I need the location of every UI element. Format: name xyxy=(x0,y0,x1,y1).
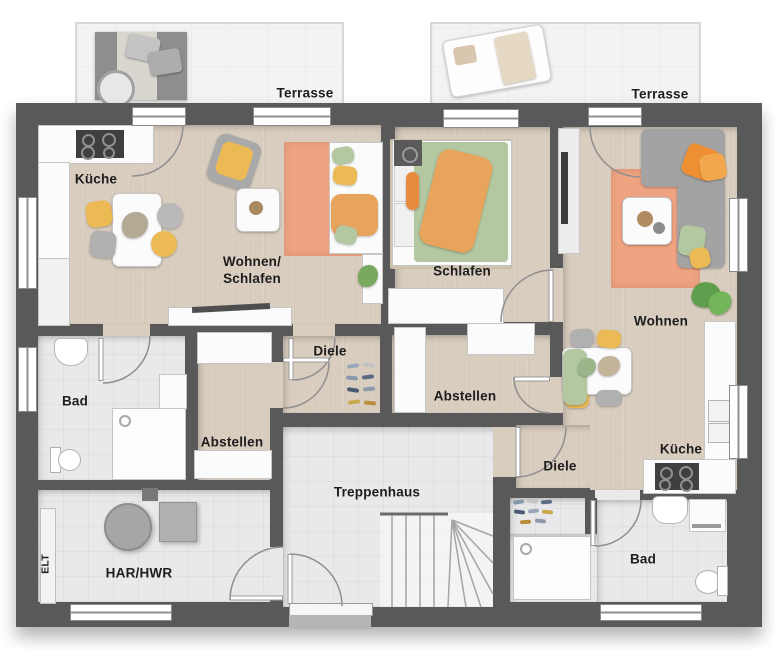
kitchen-sink xyxy=(708,400,731,422)
room-label-schlafen: Schlafen xyxy=(433,264,491,281)
room-label-abstellen-right: Abstellen xyxy=(434,389,497,406)
room-label-kueche-right: Küche xyxy=(660,442,702,459)
door-opening xyxy=(293,324,335,336)
shoe-rack xyxy=(344,360,380,414)
room-label-kueche-left: Küche xyxy=(75,172,117,189)
room-label-line2: Schlafen xyxy=(223,271,281,288)
terrace-door-left xyxy=(132,107,186,126)
room-label-abstellen-left: Abstellen xyxy=(201,435,264,452)
terrace-left: Terrasse xyxy=(75,22,344,107)
entrance-porch xyxy=(289,615,371,629)
room-label-terrasse-left: Terrasse xyxy=(277,86,334,103)
kitchen-sink xyxy=(708,423,731,443)
dining-chair xyxy=(157,203,183,229)
dining-chair xyxy=(596,390,622,406)
window xyxy=(18,197,37,289)
storage-shelf xyxy=(467,323,535,355)
door-opening xyxy=(493,427,516,477)
coffee-table xyxy=(622,197,672,245)
wall-segment xyxy=(585,498,597,534)
window xyxy=(729,198,748,272)
window xyxy=(600,604,702,621)
utility-unit xyxy=(159,502,197,542)
cushion xyxy=(698,152,728,182)
room-label-har-hwr: HAR/HWR xyxy=(106,566,173,583)
dining-chair xyxy=(89,230,118,260)
kitchen-cabinet xyxy=(38,162,70,259)
storage-shelf xyxy=(394,327,426,413)
stove xyxy=(76,130,124,158)
room-label-wohnen: Wohnen xyxy=(634,314,688,331)
toilet-tank xyxy=(717,566,728,596)
room-label-wohnen-schlafen: Wohnen/ Schlafen xyxy=(223,254,281,288)
storage-shelf xyxy=(197,332,272,364)
dining-chair xyxy=(596,329,621,349)
side-table xyxy=(236,188,280,232)
wardrobe xyxy=(388,288,504,324)
door-opening xyxy=(270,547,283,600)
room-label-elt: ELT xyxy=(39,554,52,574)
floor-plan: Terrasse Terrasse xyxy=(0,0,775,649)
shower xyxy=(513,536,591,600)
bathroom-cabinet xyxy=(159,374,187,409)
tv xyxy=(561,152,568,224)
window xyxy=(70,604,172,621)
room-label-terrasse-right: Terrasse xyxy=(632,87,689,104)
room-label-diele-right: Diele xyxy=(543,459,576,476)
door-opening xyxy=(103,324,150,336)
dining-chair xyxy=(84,199,113,228)
room-label-diele-left: Diele xyxy=(313,344,346,361)
terrace-door-right xyxy=(588,107,642,126)
room-floor-diele-right xyxy=(516,425,590,488)
door-opening xyxy=(550,268,563,322)
utility-box xyxy=(142,488,158,501)
lounger-pillow xyxy=(453,44,478,66)
sink xyxy=(652,496,688,524)
window xyxy=(729,385,748,459)
shoe-rack xyxy=(511,497,557,527)
window xyxy=(443,109,519,128)
washing-machine xyxy=(689,499,726,532)
terrace-pillow xyxy=(147,48,182,77)
window xyxy=(253,107,331,126)
toilet xyxy=(58,449,81,471)
room-label-line1: Wohnen/ xyxy=(223,254,281,271)
shower xyxy=(112,408,186,480)
cushion xyxy=(406,172,419,210)
room-floor-har-hwr xyxy=(38,490,270,602)
cushion xyxy=(332,165,358,187)
room-floor-treppenhaus xyxy=(283,427,493,607)
door-opening xyxy=(595,490,640,500)
dining-chair xyxy=(151,231,177,257)
speaker-box xyxy=(394,140,422,166)
room-label-bad-left: Bad xyxy=(62,394,88,411)
water-tank xyxy=(104,503,152,551)
door-opening xyxy=(270,362,283,408)
stove xyxy=(655,463,699,490)
dining-chair xyxy=(569,328,594,348)
dining-bench xyxy=(563,349,587,405)
room-label-treppenhaus: Treppenhaus xyxy=(334,485,420,502)
kitchen-cabinet xyxy=(38,258,70,326)
storage-shelf xyxy=(194,450,272,479)
window xyxy=(18,347,37,412)
room-label-bad-right: Bad xyxy=(630,552,656,569)
terrace-right: Terrasse xyxy=(430,22,701,107)
